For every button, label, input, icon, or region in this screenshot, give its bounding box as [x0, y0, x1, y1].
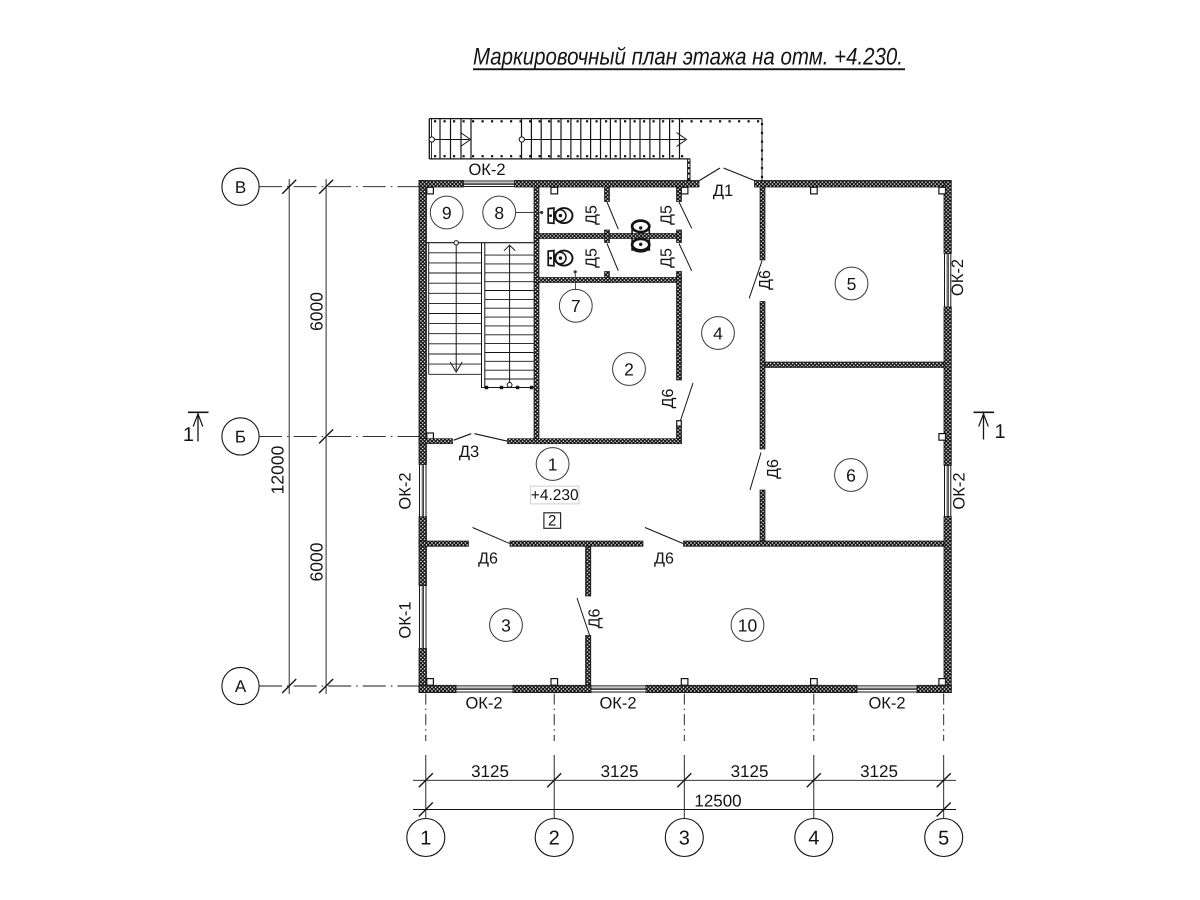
- svg-text:ОК-1: ОК-1: [397, 601, 415, 638]
- svg-text:3125: 3125: [601, 762, 639, 781]
- svg-text:ОК-2: ОК-2: [468, 161, 505, 179]
- svg-text:12000: 12000: [268, 445, 288, 494]
- svg-text:6000: 6000: [307, 542, 327, 581]
- svg-text:12500: 12500: [694, 792, 741, 811]
- svg-text:Д3: Д3: [459, 443, 479, 461]
- svg-text:1: 1: [548, 454, 558, 474]
- svg-text:Д6: Д6: [587, 609, 604, 629]
- svg-text:А: А: [235, 677, 247, 696]
- svg-text:3: 3: [501, 615, 511, 635]
- svg-text:5: 5: [938, 828, 949, 850]
- svg-text:2: 2: [548, 512, 556, 529]
- svg-text:8: 8: [494, 203, 504, 223]
- svg-text:Д5: Д5: [584, 248, 601, 268]
- svg-text:2: 2: [624, 359, 634, 379]
- svg-text:ОК-2: ОК-2: [465, 695, 502, 713]
- svg-text:Б: Б: [235, 428, 246, 447]
- svg-text:1: 1: [183, 424, 194, 446]
- svg-text:1: 1: [995, 421, 1006, 443]
- svg-text:Д6: Д6: [660, 389, 677, 409]
- svg-text:3125: 3125: [860, 762, 898, 781]
- svg-text:В: В: [235, 178, 246, 197]
- svg-text:1: 1: [420, 828, 431, 850]
- svg-text:+4.230: +4.230: [531, 487, 579, 504]
- svg-text:3125: 3125: [471, 762, 509, 781]
- svg-text:Д6: Д6: [757, 270, 774, 290]
- svg-text:Д5: Д5: [584, 205, 601, 225]
- svg-text:ОК-2: ОК-2: [949, 259, 967, 296]
- svg-text:7: 7: [571, 296, 581, 316]
- svg-text:Д1: Д1: [713, 182, 733, 200]
- svg-text:9: 9: [442, 203, 452, 223]
- svg-text:3: 3: [679, 828, 690, 850]
- svg-text:4: 4: [713, 323, 723, 343]
- svg-text:Д6: Д6: [765, 459, 782, 479]
- svg-text:Маркировочный план этажа на от: Маркировочный план этажа на отм. +4.230.: [473, 44, 903, 71]
- svg-text:ОК-2: ОК-2: [599, 695, 636, 713]
- svg-text:Д6: Д6: [654, 551, 674, 568]
- svg-text:ОК-2: ОК-2: [951, 472, 969, 509]
- svg-text:6: 6: [846, 465, 856, 485]
- svg-text:4: 4: [808, 828, 819, 850]
- svg-text:10: 10: [738, 615, 758, 635]
- svg-text:2: 2: [549, 828, 560, 850]
- svg-text:Д6: Д6: [478, 551, 498, 568]
- svg-text:6000: 6000: [307, 292, 327, 331]
- svg-text:Д5: Д5: [659, 205, 676, 225]
- svg-text:Д5: Д5: [659, 248, 676, 268]
- svg-text:5: 5: [847, 274, 857, 294]
- svg-text:ОК-2: ОК-2: [868, 695, 905, 713]
- svg-text:3125: 3125: [731, 762, 769, 781]
- svg-text:ОК-2: ОК-2: [397, 472, 415, 509]
